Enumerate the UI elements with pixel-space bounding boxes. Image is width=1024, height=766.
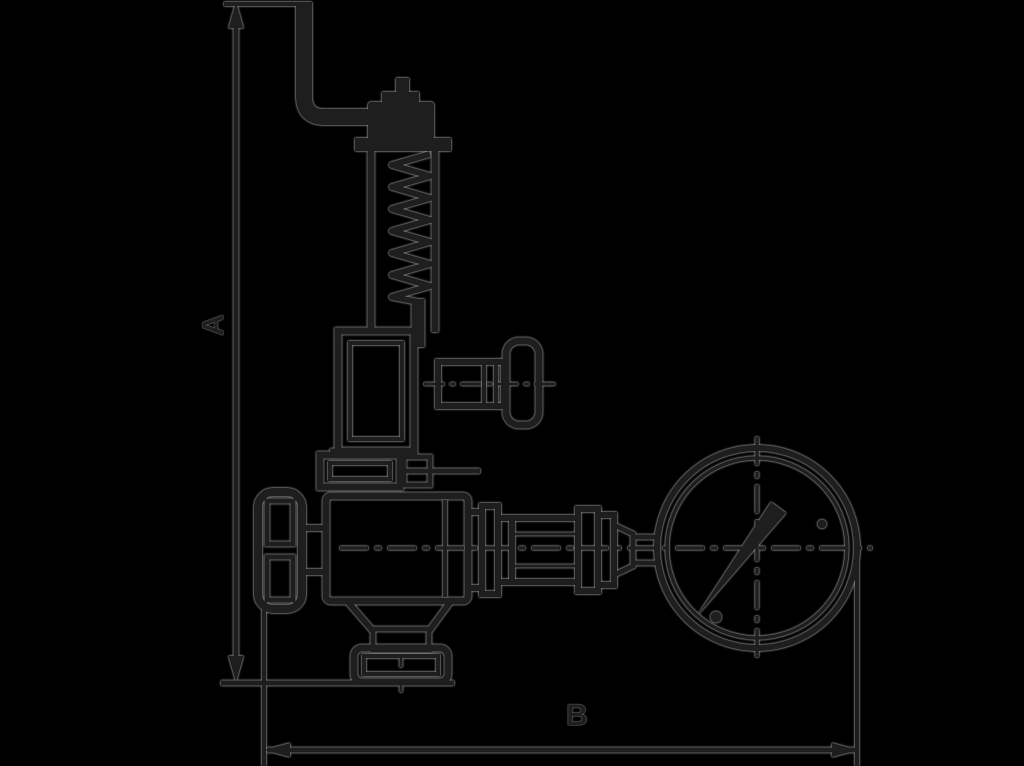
- spindle-top: [368, 78, 434, 140]
- arm-pipe: [512, 518, 578, 582]
- gauge-needle: [697, 502, 786, 616]
- outlet-taper-left: [347, 601, 373, 631]
- bonnet-flange: [320, 455, 480, 487]
- spring-coil: [392, 154, 430, 303]
- gauge-screw-lower-icon: [711, 612, 722, 623]
- dim-b-arrow-right-icon: [832, 743, 858, 757]
- left-handwheel: [258, 492, 328, 609]
- drawing-canvas: A B: [0, 0, 1024, 766]
- dim-a-arrow-down-icon: [229, 656, 244, 682]
- valve-technical-drawing: [0, 0, 1024, 766]
- dim-b-arrow-left-icon: [264, 743, 290, 757]
- outlet: [347, 601, 451, 697]
- outlet-taper-right: [429, 601, 451, 631]
- handwheel-window-bottom: [267, 557, 293, 600]
- gauge-screw-upper-icon: [818, 520, 827, 529]
- bonnet: [330, 331, 414, 452]
- dimension-b-label: B: [560, 700, 594, 732]
- handwheel-window-top: [267, 501, 293, 544]
- bonnet-inner: [350, 343, 402, 439]
- dimension-a-label: A: [198, 308, 230, 342]
- spring-housing: [355, 138, 451, 347]
- gauge-arm: [468, 506, 658, 594]
- test-connection: [424, 341, 556, 425]
- lever-fork-block: [368, 102, 434, 140]
- flange-block-inner: [330, 463, 390, 479]
